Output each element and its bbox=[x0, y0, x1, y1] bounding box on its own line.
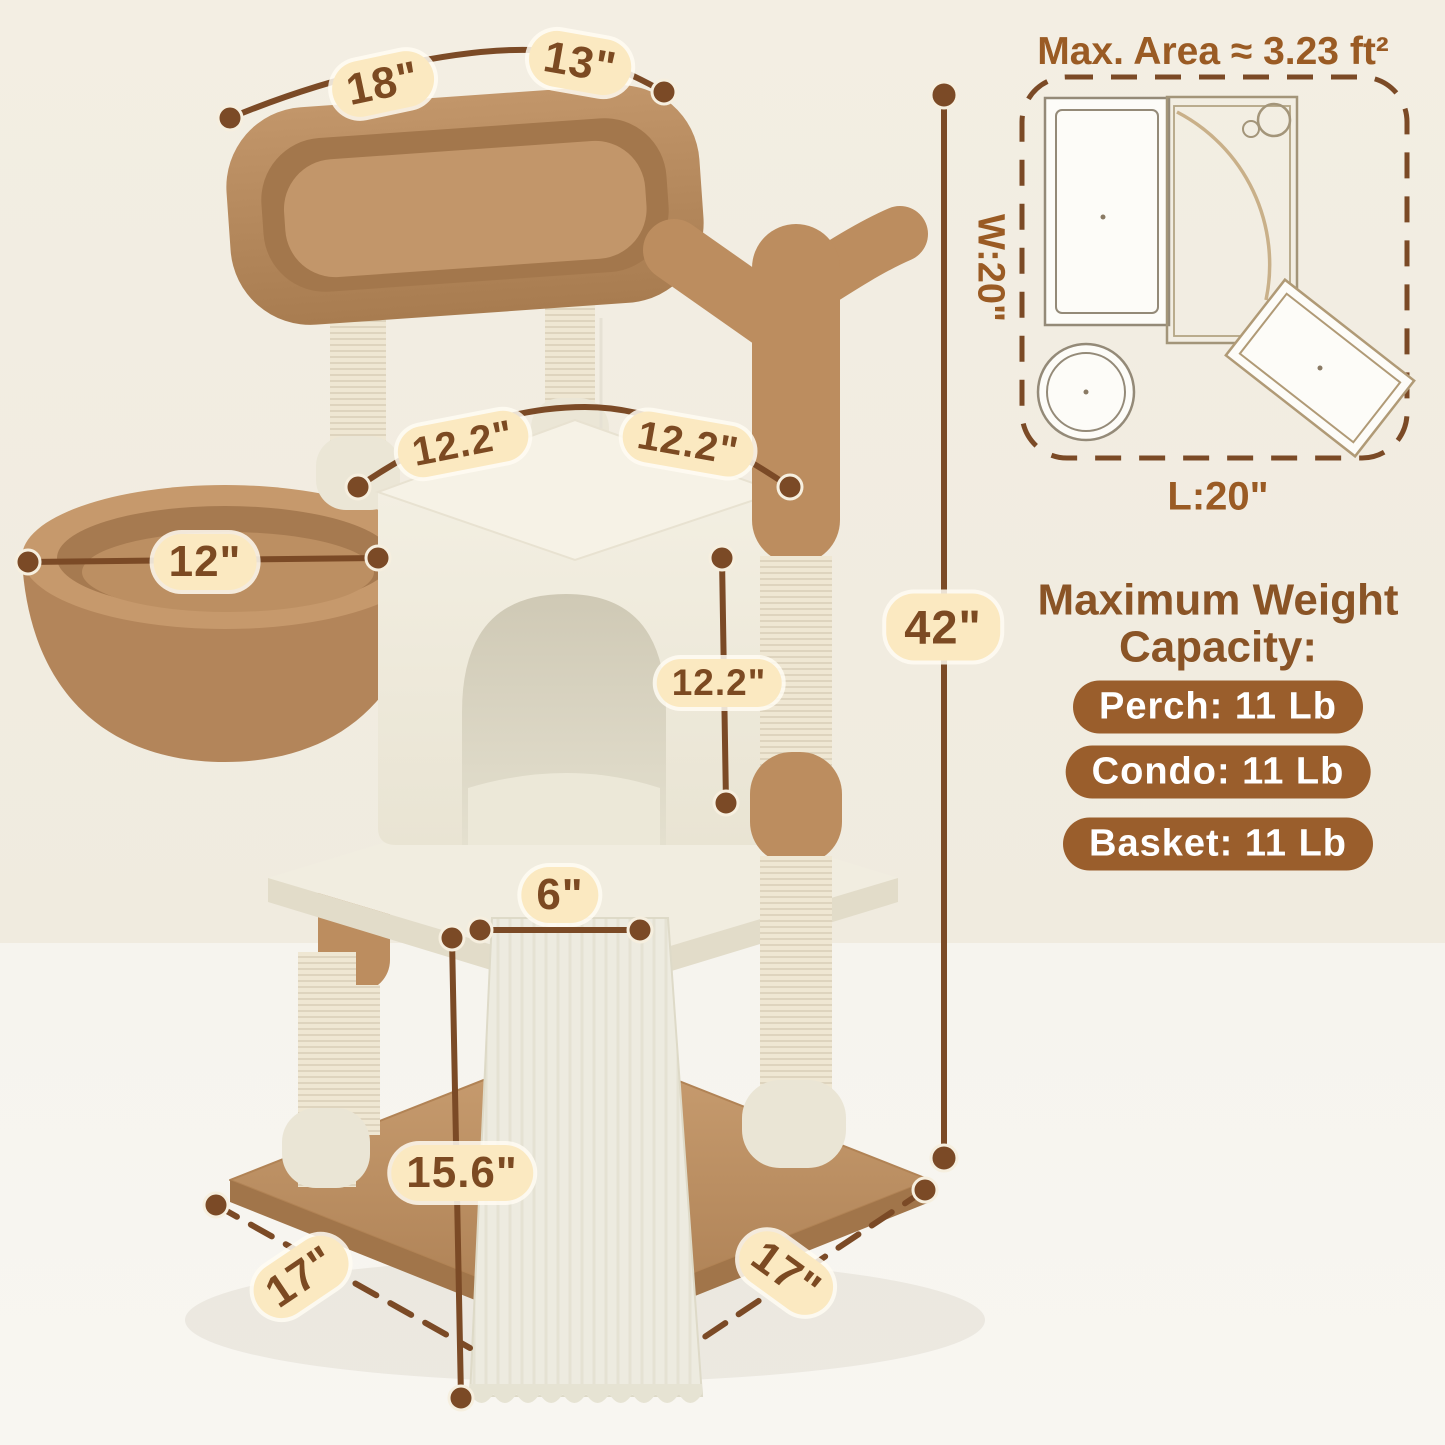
dim-label-total-height: 42" bbox=[886, 594, 1000, 661]
top-perch-bed bbox=[221, 80, 709, 331]
hanging-basket bbox=[22, 485, 428, 762]
floor-plan-width-label: W:20" bbox=[969, 214, 1012, 322]
dim-label-platform-gap: 6" bbox=[521, 867, 598, 923]
weight-capacity-heading: Maximum Weight Capacity: bbox=[1037, 577, 1398, 670]
dim-label-ramp-height: 15.6" bbox=[391, 1145, 533, 1201]
floor-plan-title: Max. Area ≈ 3.23 ft² bbox=[1037, 30, 1389, 74]
weight-badge-perch: Perch: 11 Lb bbox=[1073, 681, 1363, 734]
weight-badge-basket: Basket: 11 Lb bbox=[1063, 818, 1373, 871]
dim-label-condo-height: 12.2" bbox=[657, 659, 782, 707]
condo bbox=[378, 420, 778, 845]
cat-tree-dimension-infographic: 18" 13" 12.2" 12.2" 12" 12.2" 42" 6" 15.… bbox=[0, 0, 1445, 1445]
floor-plan-length-label: L:20" bbox=[1167, 475, 1268, 520]
floor-plan bbox=[1022, 77, 1414, 458]
weight-capacity-heading-line2: Capacity: bbox=[1037, 624, 1398, 671]
weight-badge-condo: Condo: 11 Lb bbox=[1066, 746, 1371, 799]
weight-capacity-heading-line1: Maximum Weight bbox=[1037, 577, 1398, 624]
dim-label-basket-diameter: 12" bbox=[154, 534, 257, 590]
